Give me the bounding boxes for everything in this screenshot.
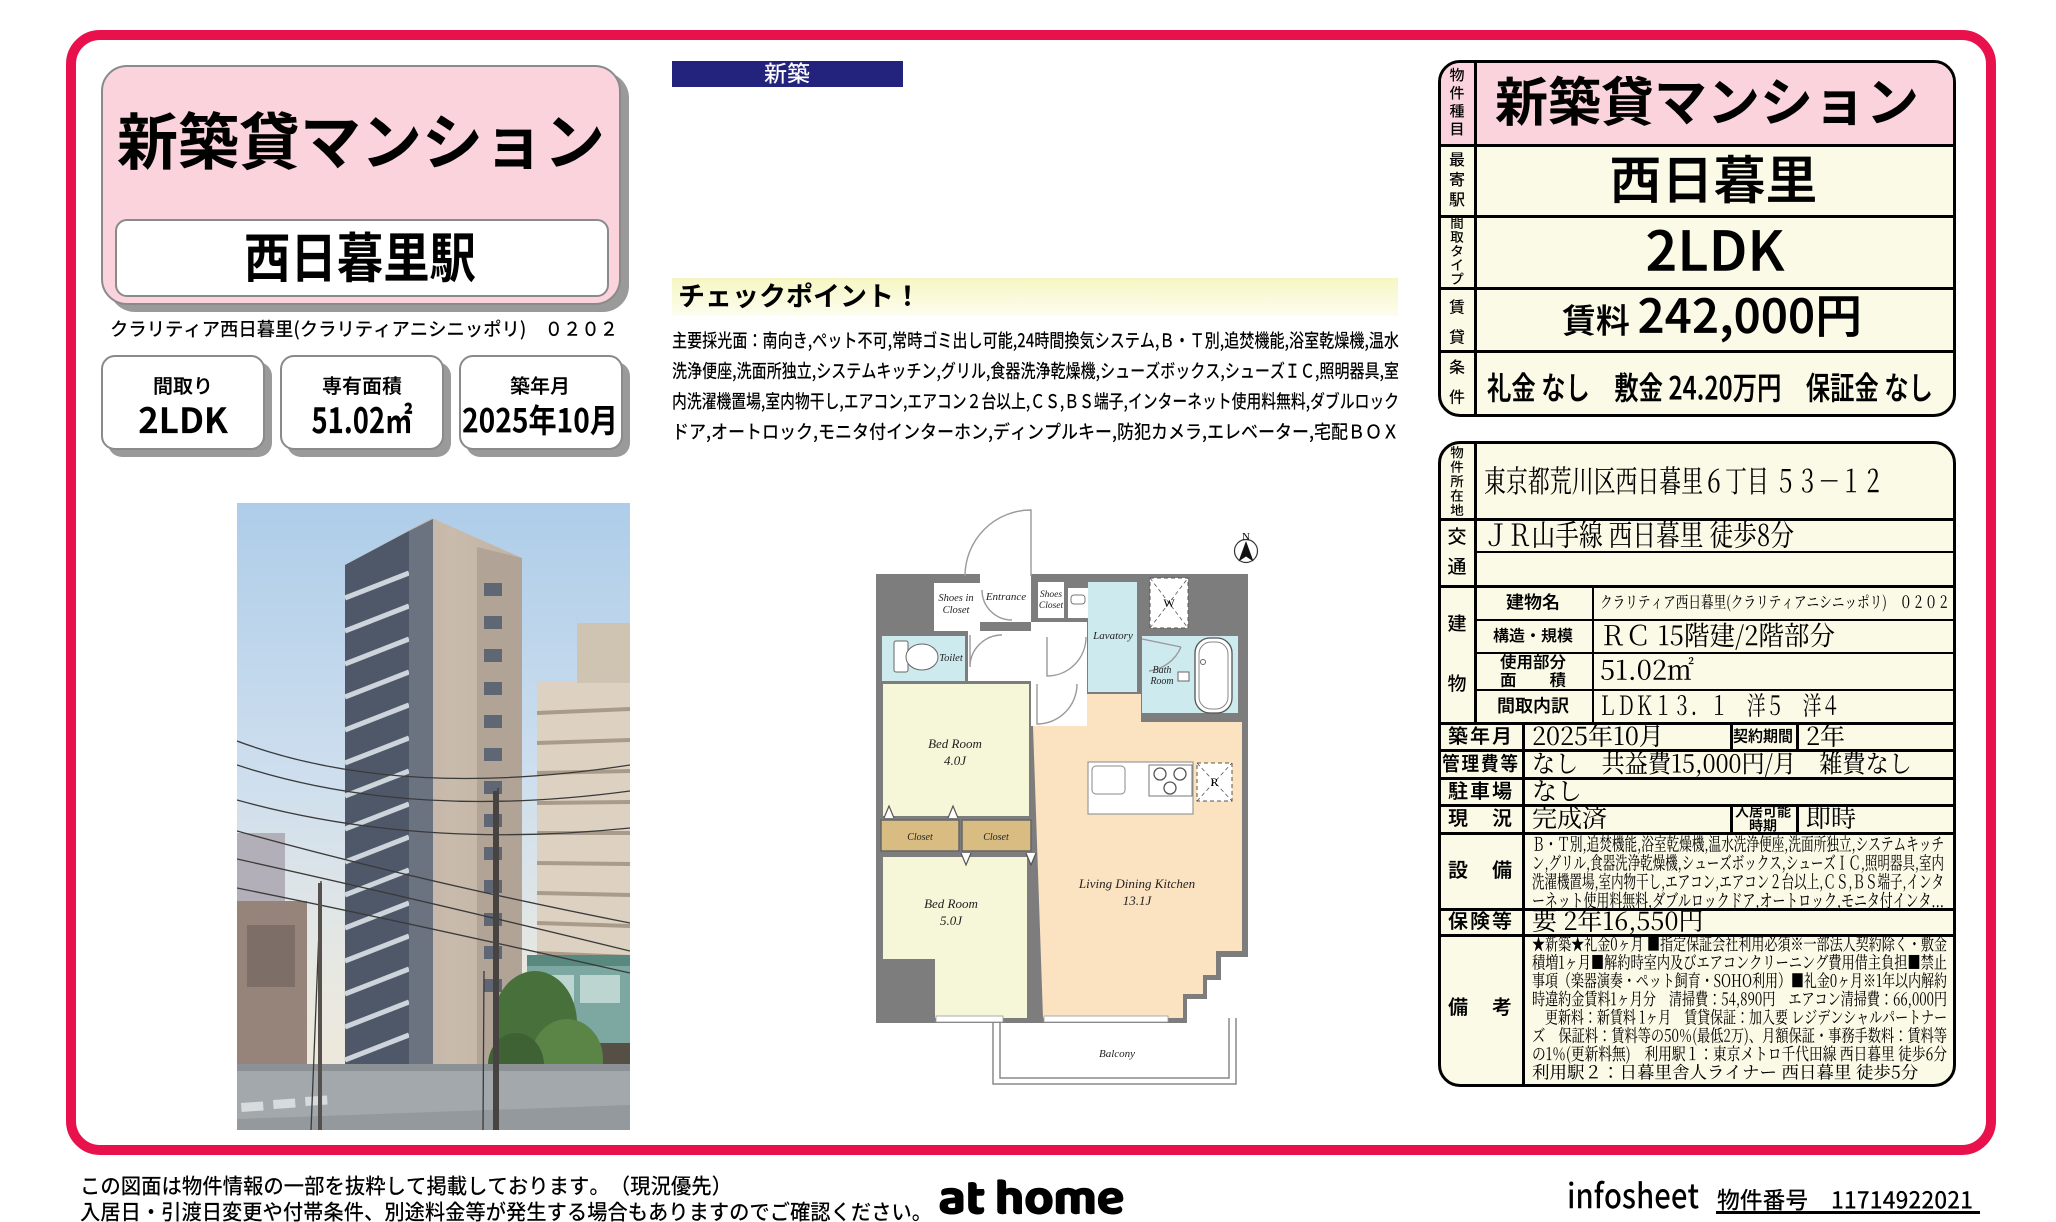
svg-text:Balcony: Balcony bbox=[1099, 1048, 1135, 1060]
svg-text:4.0J: 4.0J bbox=[944, 753, 967, 768]
svg-text:13.1J: 13.1J bbox=[1123, 893, 1153, 908]
svg-text:Room: Room bbox=[1149, 676, 1173, 687]
svg-text:N: N bbox=[1242, 531, 1250, 543]
svg-text:R: R bbox=[1210, 775, 1218, 789]
svg-text:W: W bbox=[1163, 596, 1175, 610]
svg-text:Closet: Closet bbox=[943, 605, 971, 616]
svg-text:Shoes: Shoes bbox=[1040, 590, 1062, 600]
svg-text:Toilet: Toilet bbox=[939, 653, 964, 664]
svg-text:Closet: Closet bbox=[1039, 601, 1064, 611]
svg-text:Bath: Bath bbox=[1153, 665, 1172, 676]
svg-text:Bed Room: Bed Room bbox=[924, 896, 978, 911]
svg-text:5.0J: 5.0J bbox=[940, 913, 963, 928]
svg-text:Living Dining Kitchen: Living Dining Kitchen bbox=[1078, 876, 1195, 891]
svg-text:Closet: Closet bbox=[907, 832, 933, 843]
svg-text:Entrance: Entrance bbox=[985, 591, 1026, 603]
svg-text:Closet: Closet bbox=[983, 832, 1009, 843]
svg-text:Bed Room: Bed Room bbox=[928, 736, 982, 751]
svg-text:Shoes in: Shoes in bbox=[938, 593, 973, 604]
svg-text:Lavatory: Lavatory bbox=[1092, 630, 1133, 642]
